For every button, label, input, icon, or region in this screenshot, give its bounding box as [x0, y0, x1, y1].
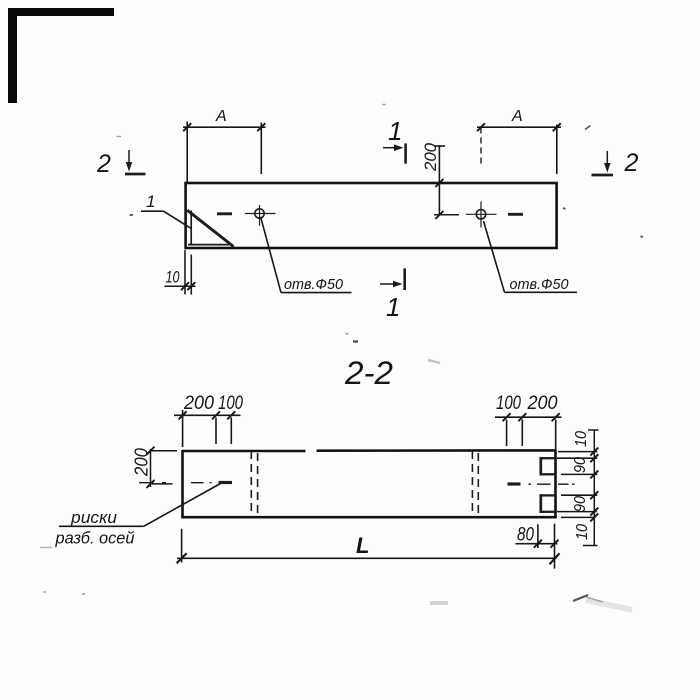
svg-text:200: 200	[527, 393, 558, 414]
svg-text:разб. осей: разб. осей	[55, 529, 135, 548]
svg-text:200: 200	[132, 448, 152, 477]
svg-text:L: L	[356, 533, 369, 558]
svg-text:риски: риски	[70, 508, 118, 527]
svg-text:1: 1	[386, 292, 400, 322]
svg-text:200: 200	[183, 393, 214, 414]
svg-text:2: 2	[624, 149, 639, 177]
svg-text:200: 200	[421, 142, 440, 172]
svg-text:90: 90	[572, 457, 589, 473]
svg-text:2-2: 2-2	[344, 355, 393, 391]
svg-text:A: A	[511, 108, 523, 125]
svg-text:90: 90	[572, 496, 589, 512]
svg-text:2: 2	[96, 150, 111, 178]
svg-text:1: 1	[146, 192, 155, 211]
svg-text:10: 10	[166, 268, 180, 287]
svg-text:80: 80	[517, 525, 534, 546]
svg-text:A: A	[215, 108, 227, 125]
svg-text:100: 100	[218, 393, 243, 414]
svg-text:отв.Ф50: отв.Ф50	[284, 276, 344, 293]
svg-text:10: 10	[573, 431, 590, 447]
svg-text:100: 100	[496, 393, 521, 414]
svg-text:1: 1	[388, 116, 402, 146]
svg-text:10: 10	[574, 524, 591, 540]
svg-text:отв.Ф50: отв.Ф50	[510, 276, 570, 293]
